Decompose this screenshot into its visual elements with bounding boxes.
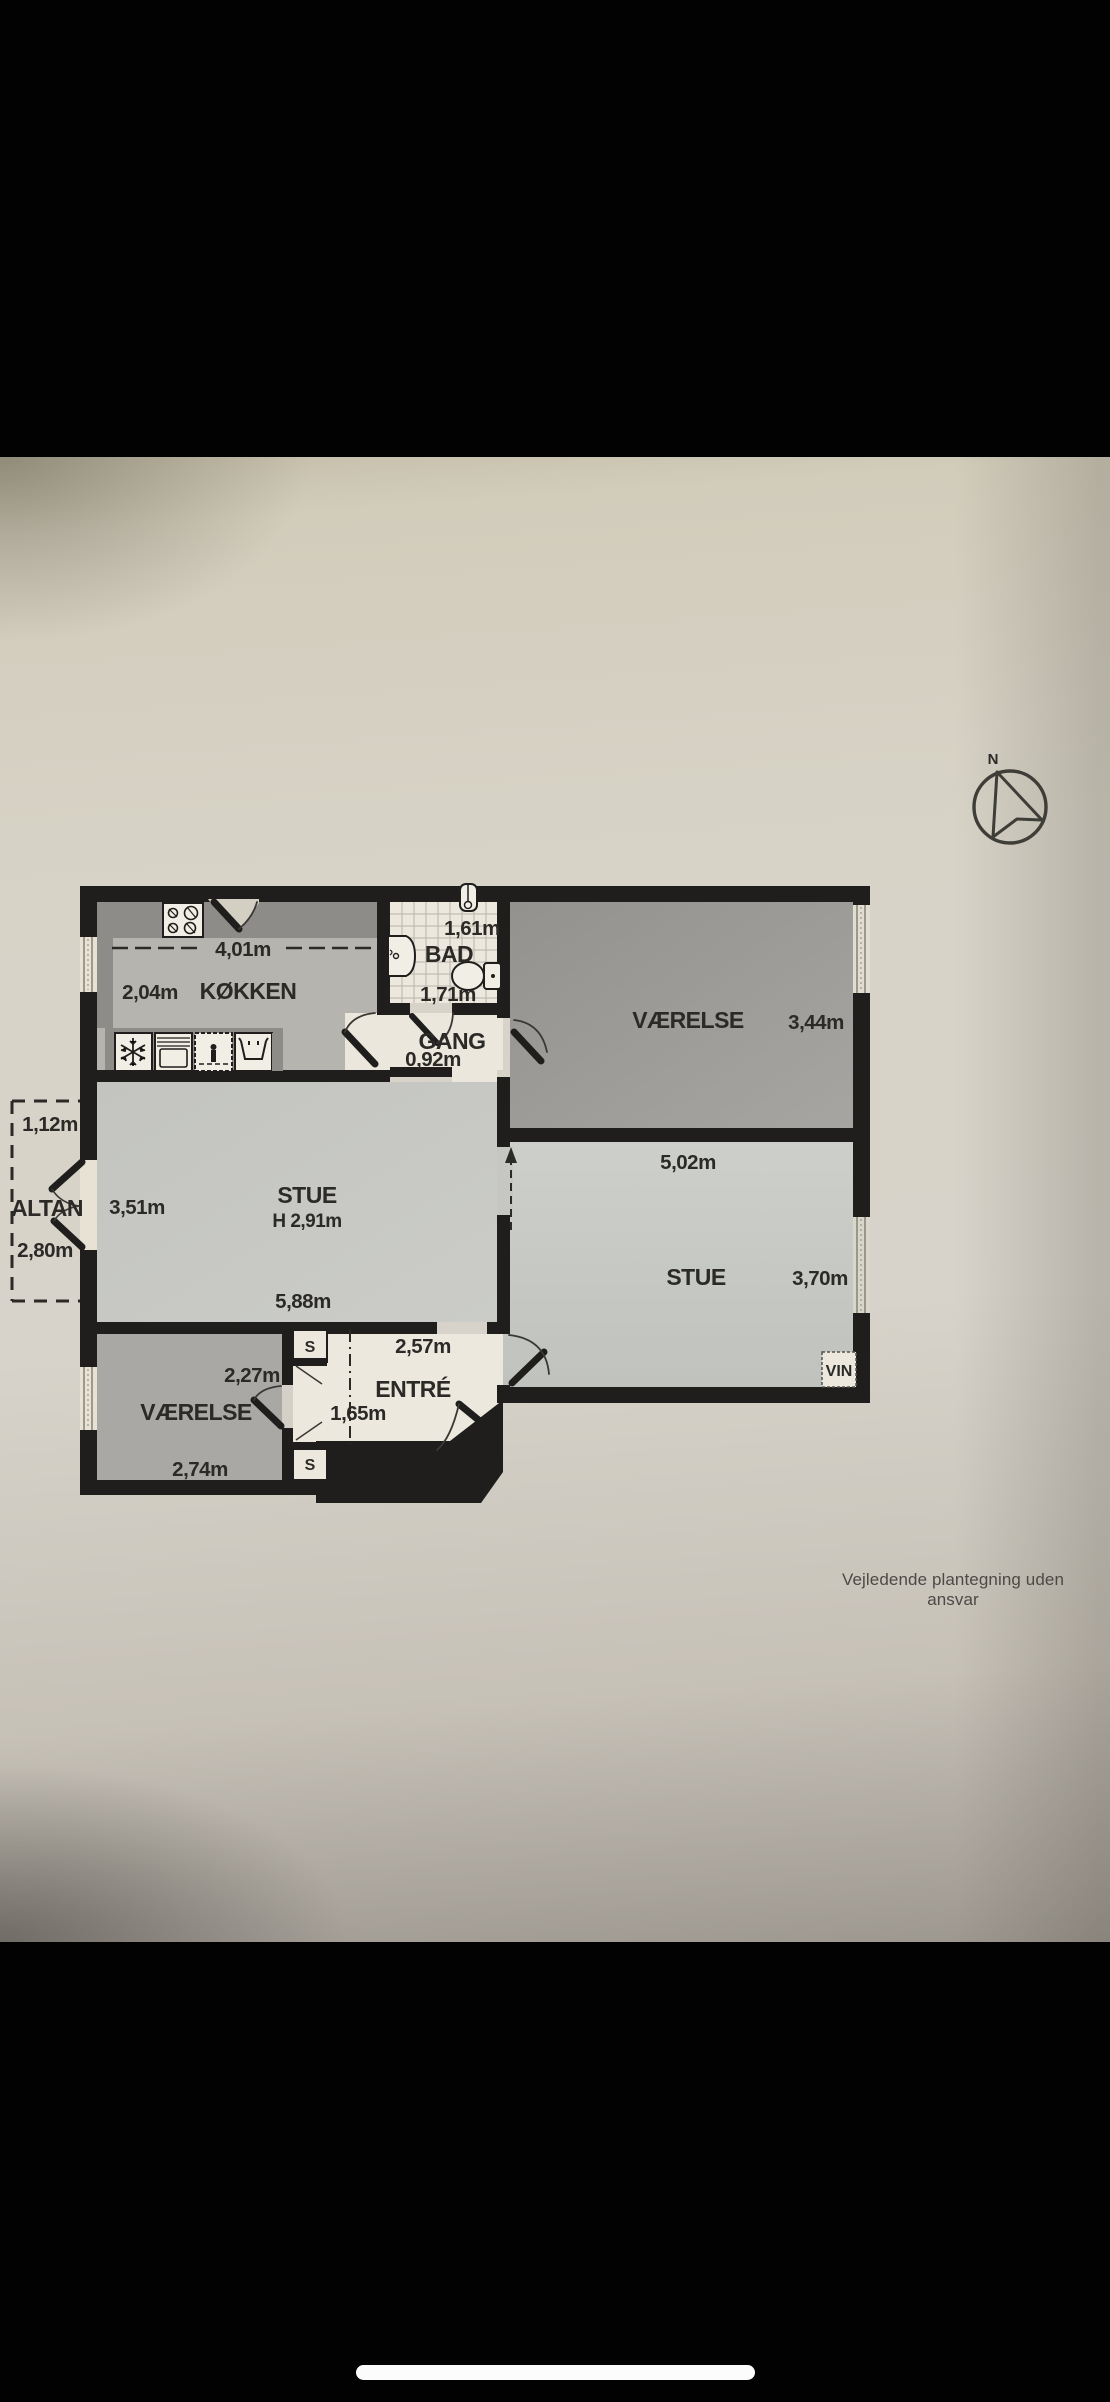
label-koekken-depth: 2,04m — [122, 981, 178, 1004]
label-entre: ENTRÉ — [375, 1375, 451, 1402]
label-entre-width: 2,57m — [395, 1335, 451, 1358]
sink-icon — [195, 1033, 232, 1071]
counter-end — [272, 1033, 283, 1071]
label-vaerelse-ne-width: 3,44m — [788, 1011, 844, 1034]
window-koekken-left-icon — [80, 937, 97, 992]
label-stue-w: STUE — [277, 1182, 337, 1208]
bath-sink-icon — [388, 936, 415, 976]
window-stue-e-right-icon — [853, 1217, 870, 1313]
label-koekken: KØKKEN — [200, 978, 297, 1004]
freezer-icon — [115, 1033, 152, 1071]
fridge-icon — [155, 1033, 192, 1071]
home-indicator[interactable] — [356, 2365, 755, 2380]
label-altan-depth: 1,12m — [22, 1113, 78, 1136]
window-vaerelse-ne-right-icon — [853, 905, 870, 993]
footer-disclaimer: Vejledende plantegning uden ansvar — [818, 1570, 1088, 1610]
label-altan: ALTAN — [11, 1195, 83, 1221]
label-stue-e: STUE — [666, 1264, 726, 1290]
window-vaerelse-sw-left-icon — [80, 1367, 97, 1430]
label-koekken-width: 4,01m — [215, 938, 271, 961]
letterbox-bottom — [0, 1942, 1110, 2402]
label-vin: VIN — [826, 1363, 853, 1380]
washbasin-icon — [235, 1033, 272, 1071]
label-stue-e-depth: 3,70m — [792, 1267, 848, 1290]
phone-screen: 4,01m 2,04m KØKKEN 1,61m BAD 1,71m GANG … — [0, 0, 1110, 2402]
label-entre-inner: 1,65m — [330, 1402, 386, 1425]
koekken-counter-left — [97, 930, 113, 1028]
label-vaerelse-ne: VÆRELSE — [632, 1007, 744, 1033]
label-altan-width: 2,80m — [17, 1239, 73, 1262]
label-stue-w-width: 5,88m — [275, 1290, 331, 1313]
label-bad-width: 1,61m — [444, 917, 500, 940]
label-gang-width: 0,92m — [405, 1048, 461, 1071]
label-bad: BAD — [425, 941, 473, 967]
compass-icon — [974, 771, 1046, 843]
wall-pipe-icon — [460, 884, 477, 911]
label-vaerelse-sw-closet: 2,27m — [224, 1364, 280, 1387]
label-vaerelse-sw: VÆRELSE — [140, 1399, 252, 1425]
floorplan-drawing: 4,01m 2,04m KØKKEN 1,61m BAD 1,71m GANG … — [0, 457, 1110, 1942]
label-stue-w-depth: 3,51m — [109, 1196, 165, 1219]
label-stue-e-width: 5,02m — [660, 1151, 716, 1174]
label-closet-top: S — [305, 1339, 316, 1356]
label-stue-w-height: H 2,91m — [272, 1211, 341, 1232]
stove-icon — [163, 903, 203, 937]
vin-box: VIN — [822, 1352, 856, 1387]
label-compass-north: N — [988, 751, 999, 768]
label-closet-bottom: S — [305, 1457, 316, 1474]
label-vaerelse-sw-width: 2,74m — [172, 1458, 228, 1481]
letterbox-top — [0, 0, 1110, 457]
label-bad-depth: 1,71m — [420, 983, 476, 1006]
floorplan-photo: 4,01m 2,04m KØKKEN 1,61m BAD 1,71m GANG … — [0, 457, 1110, 1942]
